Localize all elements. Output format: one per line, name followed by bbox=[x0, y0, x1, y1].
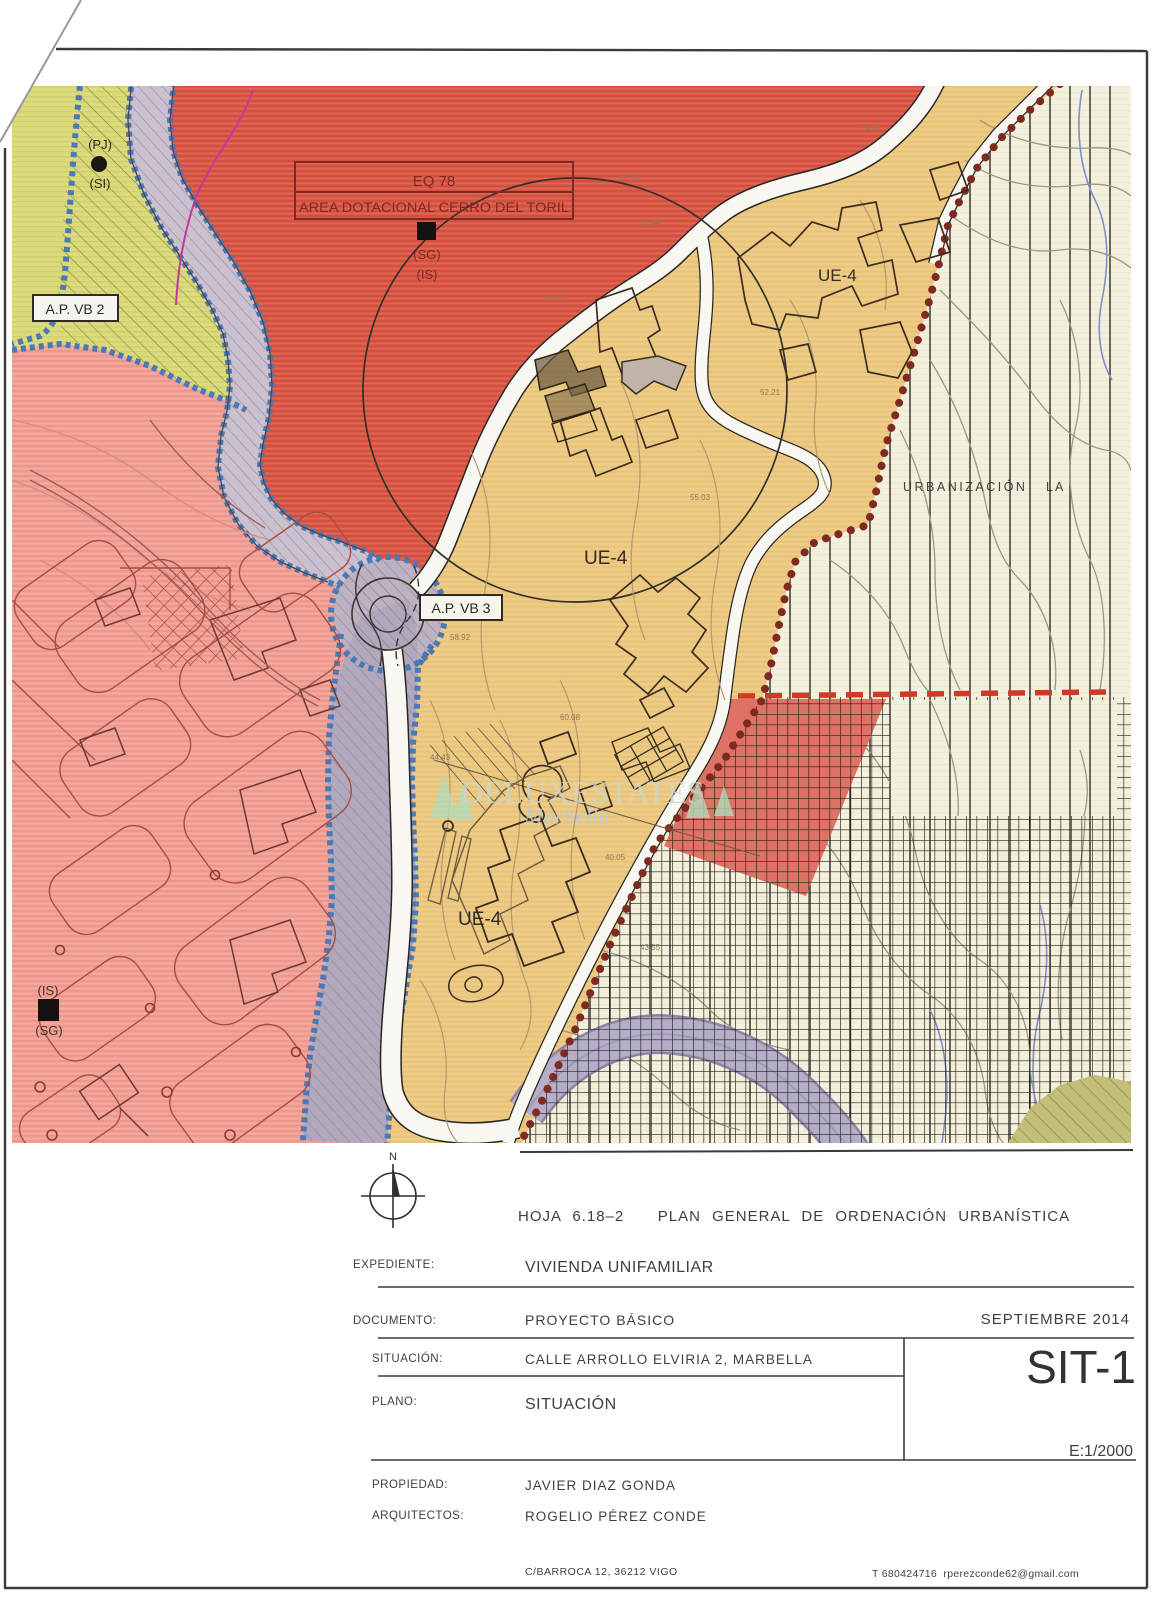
svg-text:(SG): (SG) bbox=[413, 247, 440, 262]
svg-text:UE-4: UE-4 bbox=[458, 909, 502, 930]
svg-text:SEPTIEMBRE 2014: SEPTIEMBRE 2014 bbox=[981, 1311, 1130, 1328]
svg-text:PLANO:: PLANO: bbox=[372, 1396, 417, 1408]
svg-text:CALLE ARROLLO ELVIRIA 2, MARBE: CALLE ARROLLO ELVIRIA 2, MARBELLA bbox=[525, 1352, 813, 1367]
svg-text:A.P. VB 2: A.P. VB 2 bbox=[46, 301, 105, 317]
svg-text:E:1/2000: E:1/2000 bbox=[1069, 1443, 1133, 1460]
svg-text:Marbella: Marbella bbox=[523, 804, 610, 829]
svg-text:LA: LA bbox=[1046, 480, 1065, 494]
svg-text:C/BARROCA 12, 36212 VIGO: C/BARROCA 12, 36212 VIGO bbox=[525, 1566, 678, 1578]
svg-text:PROPIEDAD:: PROPIEDAD: bbox=[372, 1479, 448, 1491]
svg-text:51.44: 51.44 bbox=[640, 218, 661, 227]
svg-text:(IS): (IS) bbox=[417, 267, 438, 282]
svg-text:N: N bbox=[389, 1151, 397, 1163]
svg-text:43.55: 43.55 bbox=[640, 943, 661, 952]
svg-text:74.16: 74.16 bbox=[860, 123, 881, 132]
svg-text:URBANIZACIÓN: URBANIZACIÓN bbox=[903, 479, 1027, 494]
svg-text:60.08: 60.08 bbox=[560, 713, 581, 722]
svg-text:ARQUITECTOS:: ARQUITECTOS: bbox=[372, 1510, 464, 1522]
svg-text:55.03: 55.03 bbox=[690, 493, 711, 502]
svg-text:56.03: 56.03 bbox=[545, 293, 566, 302]
svg-text:PROYECTO BÁSICO: PROYECTO BÁSICO bbox=[525, 1312, 675, 1328]
svg-text:DOCUMENTO:: DOCUMENTO: bbox=[353, 1315, 436, 1327]
svg-text:T 680424716 rperezconde62@gma: T 680424716 rperezconde62@gmail.com bbox=[872, 1568, 1079, 1580]
svg-text:52.21: 52.21 bbox=[760, 388, 781, 397]
svg-text:HOJA 6.18–2 PLAN GENERAL DE: HOJA 6.18–2 PLAN GENERAL DE ORDENACIÓN U… bbox=[518, 1208, 1070, 1225]
svg-text:58.92: 58.92 bbox=[450, 633, 471, 642]
svg-text:UE-4: UE-4 bbox=[584, 548, 628, 569]
svg-text:40.05: 40.05 bbox=[605, 853, 626, 862]
svg-text:44.43: 44.43 bbox=[430, 753, 451, 762]
svg-text:38.04: 38.04 bbox=[620, 173, 641, 182]
svg-text:AREA DOTACIONAL CERRO DEL TORI: AREA DOTACIONAL CERRO DEL TORIL bbox=[299, 200, 570, 215]
svg-text:SITUACIÓN: SITUACIÓN bbox=[525, 1394, 617, 1413]
svg-text:JAVIER DIAZ GONDA: JAVIER DIAZ GONDA bbox=[525, 1478, 676, 1493]
svg-text:SITUACIÓN:: SITUACIÓN: bbox=[372, 1352, 443, 1365]
svg-text:SIT-1: SIT-1 bbox=[1026, 1341, 1136, 1393]
svg-text:VIVIENDA UNIFAMILIAR: VIVIENDA UNIFAMILIAR bbox=[525, 1259, 714, 1276]
svg-text:(IS): (IS) bbox=[38, 983, 59, 998]
svg-text:(PJ): (PJ) bbox=[88, 137, 112, 152]
svg-text:(SG): (SG) bbox=[35, 1023, 62, 1038]
svg-text:ROGELIO PÉREZ CONDE: ROGELIO PÉREZ CONDE bbox=[525, 1509, 707, 1524]
svg-text:(SI): (SI) bbox=[90, 176, 111, 191]
svg-text:A.P. VB 3: A.P. VB 3 bbox=[432, 600, 491, 616]
svg-text:EXPEDIENTE:: EXPEDIENTE: bbox=[353, 1259, 435, 1271]
svg-text:UE-4: UE-4 bbox=[818, 266, 857, 285]
svg-text:EQ 78: EQ 78 bbox=[413, 173, 456, 190]
